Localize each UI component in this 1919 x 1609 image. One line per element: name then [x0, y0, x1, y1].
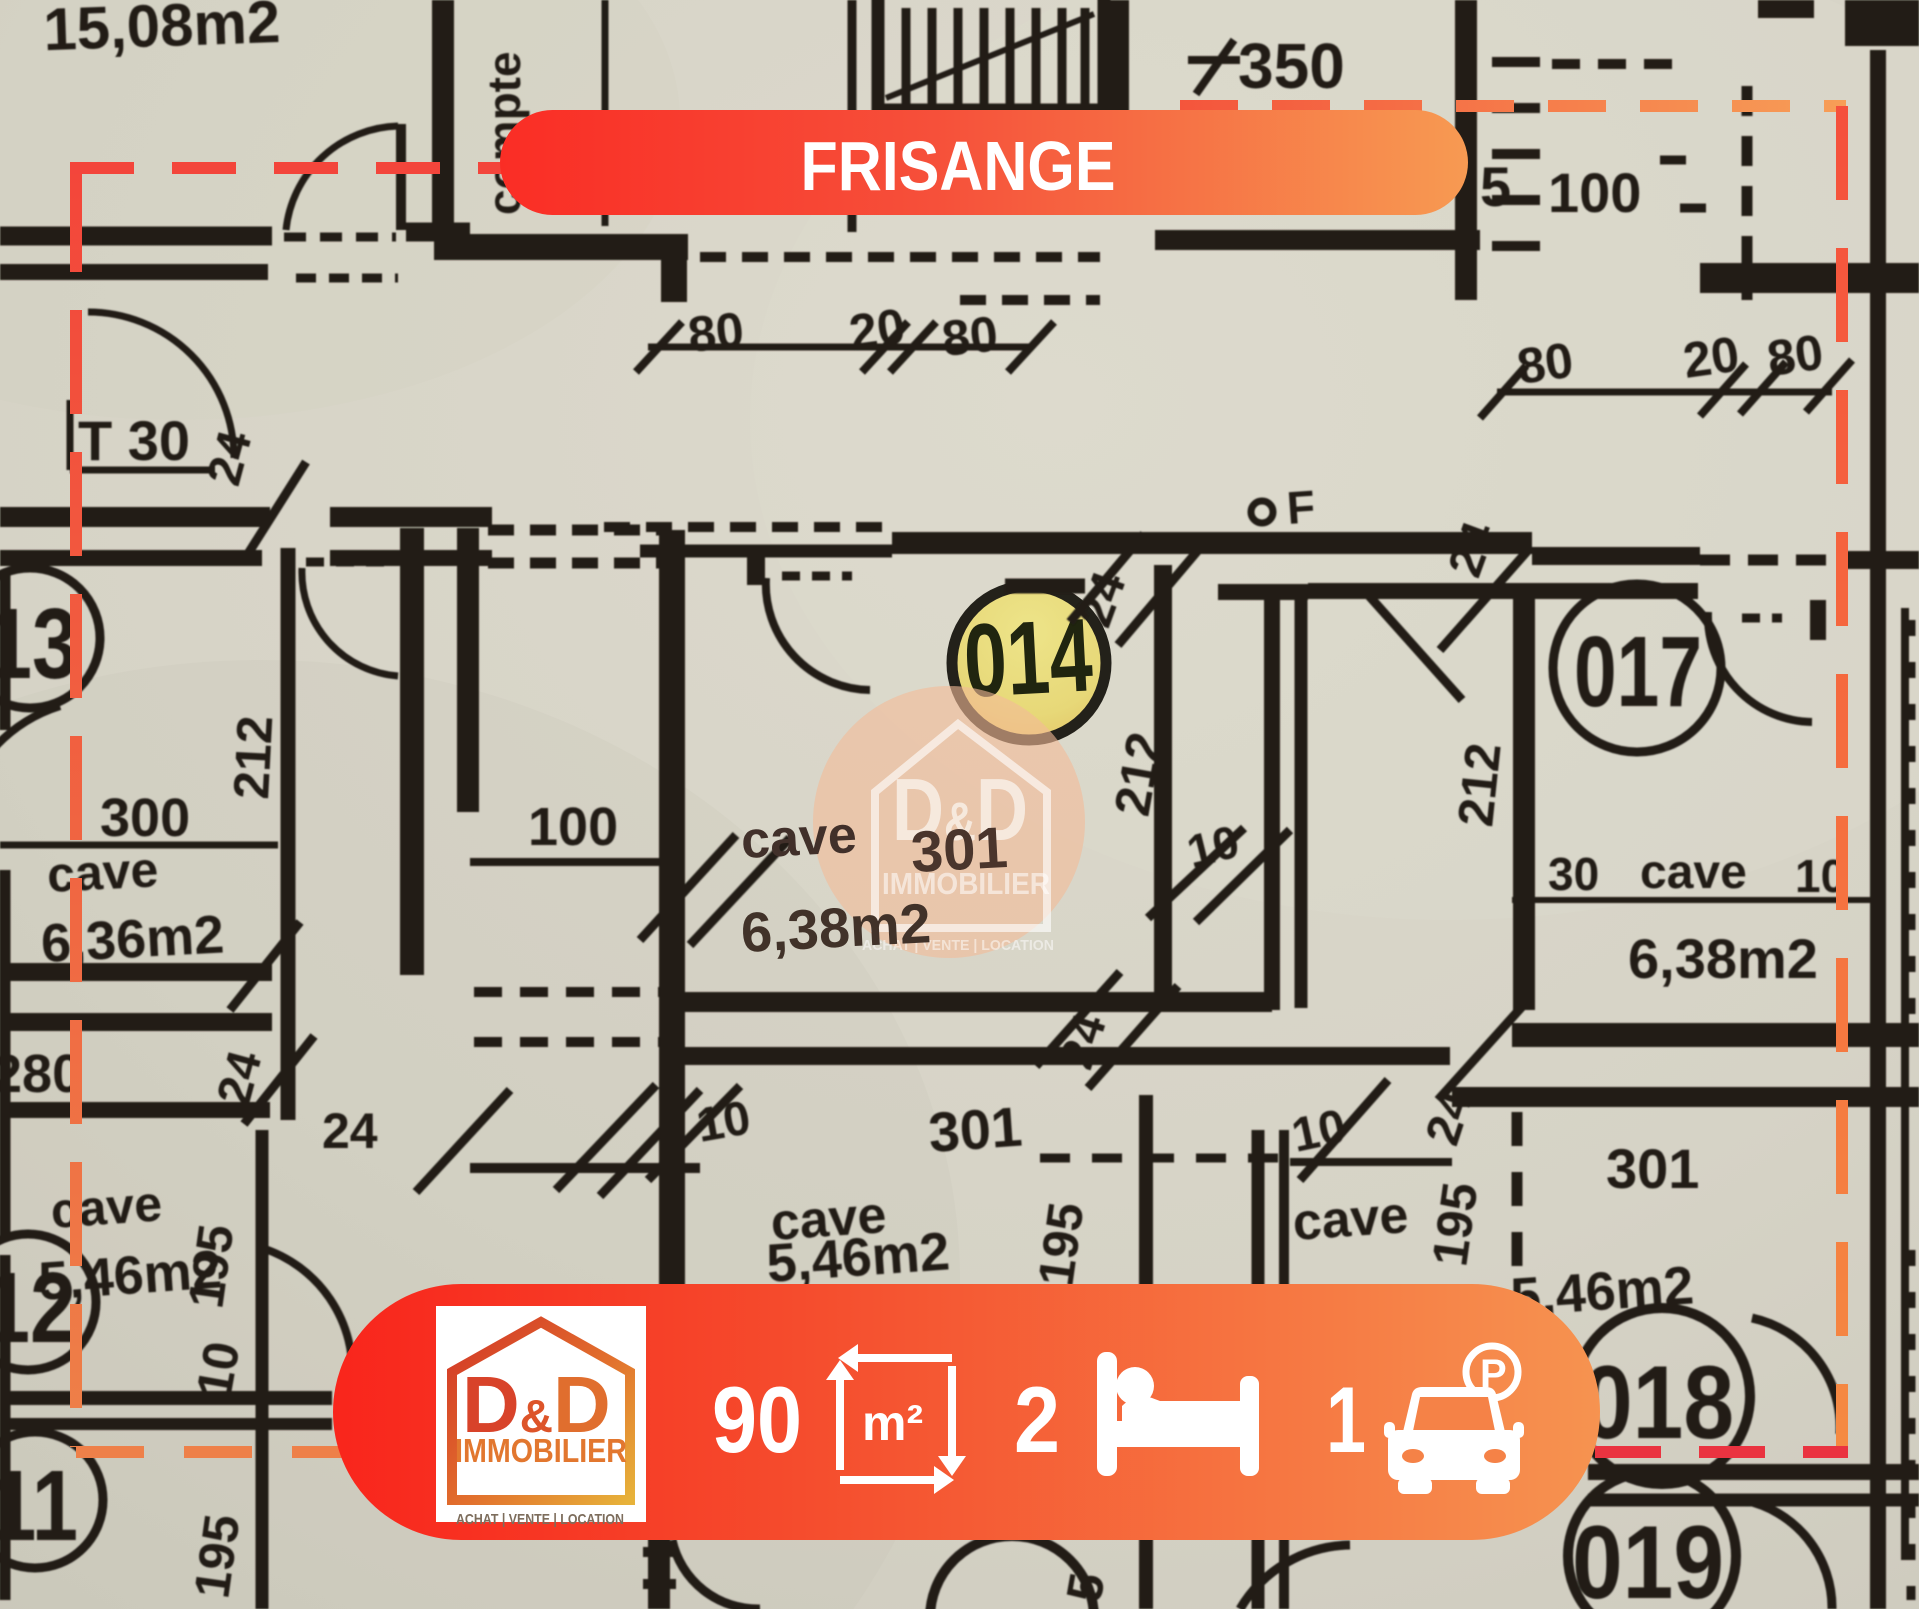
svg-text:15,08m2: 15,08m2 [42, 0, 281, 63]
svg-text:6,38m2: 6,38m2 [739, 891, 932, 964]
svg-text:019: 019 [1572, 1505, 1724, 1609]
svg-text:6,38m2: 6,38m2 [1628, 927, 1818, 990]
svg-text:280: 280 [0, 1044, 82, 1104]
svg-text:FRISANGE: FRISANGE [801, 127, 1116, 205]
svg-text:80: 80 [1514, 332, 1577, 395]
svg-text:11: 11 [0, 1450, 78, 1562]
svg-text:13: 13 [0, 588, 78, 700]
svg-text:12: 12 [0, 1252, 76, 1364]
svg-text:017: 017 [1574, 616, 1702, 728]
svg-text:018: 018 [1582, 1345, 1734, 1461]
svg-text:2: 2 [1014, 1367, 1060, 1472]
svg-text:cave: cave [1640, 846, 1747, 899]
svg-text:1: 1 [1326, 1367, 1366, 1472]
svg-text:5,46m2: 5,46m2 [765, 1221, 952, 1294]
svg-text:350: 350 [1238, 30, 1345, 102]
svg-text:10: 10 [1287, 1100, 1350, 1163]
svg-text:T 30: T 30 [78, 409, 190, 472]
svg-text:cave: cave [46, 841, 160, 903]
svg-text:301: 301 [1606, 1137, 1699, 1200]
svg-text:212: 212 [1447, 740, 1511, 829]
svg-text:80: 80 [939, 305, 1000, 367]
svg-text:80: 80 [685, 301, 746, 363]
svg-text:30: 30 [1548, 848, 1599, 900]
svg-text:m²: m² [862, 1395, 923, 1451]
svg-text:cave: cave [1291, 1186, 1410, 1252]
svg-text:5: 5 [1480, 155, 1511, 218]
svg-text:301: 301 [909, 815, 1009, 885]
svg-text:100: 100 [1548, 161, 1641, 224]
svg-text:20: 20 [846, 298, 909, 361]
svg-text:301: 301 [926, 1095, 1024, 1164]
svg-text:cave: cave [49, 1175, 164, 1239]
svg-text:IMMOBILIER: IMMOBILIER [455, 1432, 627, 1469]
svg-text:100: 100 [528, 797, 618, 857]
svg-text:195: 195 [183, 1511, 250, 1601]
svg-text:20: 20 [1680, 326, 1743, 389]
svg-text:cave: cave [740, 806, 859, 870]
svg-text:195: 195 [1421, 1179, 1488, 1269]
svg-text:212: 212 [223, 714, 283, 800]
svg-text:90: 90 [712, 1367, 802, 1472]
svg-text:ACHAT | VENTE | LOCATION: ACHAT | VENTE | LOCATION [456, 1511, 624, 1528]
svg-text:F: F [1285, 480, 1317, 534]
svg-text:80: 80 [1764, 324, 1827, 387]
svg-text:195: 195 [1027, 1199, 1094, 1289]
svg-text:300: 300 [100, 788, 190, 848]
svg-text:24: 24 [322, 1103, 378, 1159]
